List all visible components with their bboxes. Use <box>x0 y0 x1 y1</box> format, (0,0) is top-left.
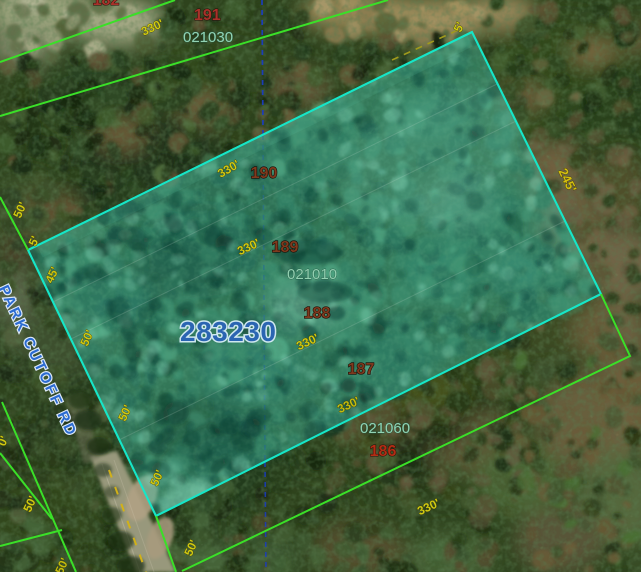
svg-text:190: 190 <box>251 165 278 182</box>
svg-text:182: 182 <box>93 0 120 9</box>
svg-text:191: 191 <box>194 7 221 24</box>
svg-text:188: 188 <box>304 305 331 322</box>
svg-text:186: 186 <box>370 443 397 460</box>
svg-text:283230: 283230 <box>180 316 276 347</box>
svg-text:021060: 021060 <box>360 420 410 437</box>
svg-text:189: 189 <box>272 239 299 256</box>
svg-text:021030: 021030 <box>183 29 233 46</box>
svg-text:187: 187 <box>348 361 375 378</box>
svg-text:021010: 021010 <box>287 266 337 283</box>
